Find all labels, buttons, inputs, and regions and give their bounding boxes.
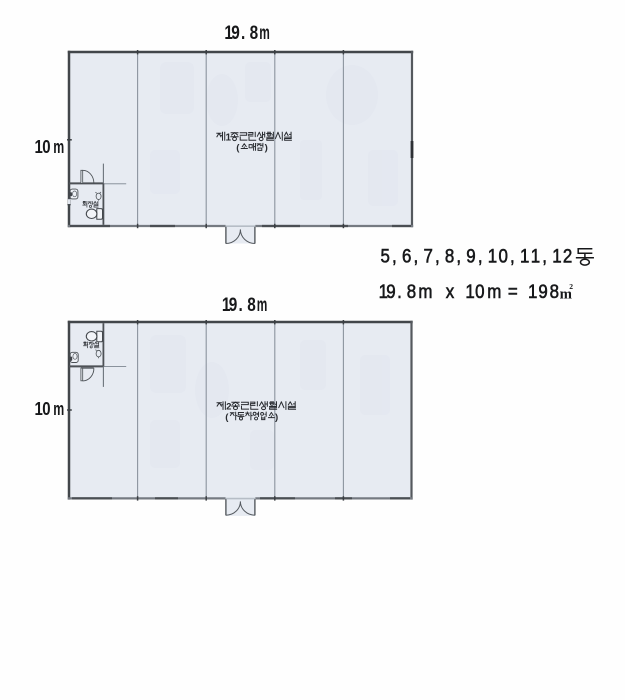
svg-text:m: m <box>257 296 268 316</box>
svg-text:2: 2 <box>569 282 573 291</box>
svg-text:10: 10 <box>34 398 50 419</box>
svg-text:19.8: 19.8 <box>224 21 258 43</box>
svg-text:m: m <box>53 137 64 157</box>
svg-text:): ) <box>275 412 278 423</box>
svg-text:m: m <box>259 23 270 43</box>
svg-text:2: 2 <box>226 401 231 411</box>
svg-text:1: 1 <box>226 132 232 143</box>
svg-text:10: 10 <box>34 136 50 157</box>
svg-text:): ) <box>265 143 268 154</box>
svg-text:m: m <box>53 399 64 419</box>
svg-text:19.8: 19.8 <box>222 294 256 316</box>
